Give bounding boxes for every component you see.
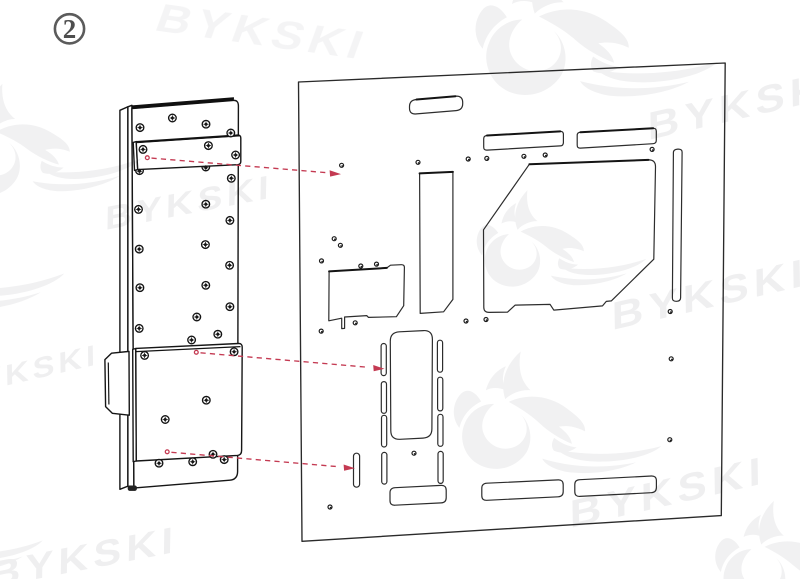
- svg-text:2: 2: [63, 14, 77, 44]
